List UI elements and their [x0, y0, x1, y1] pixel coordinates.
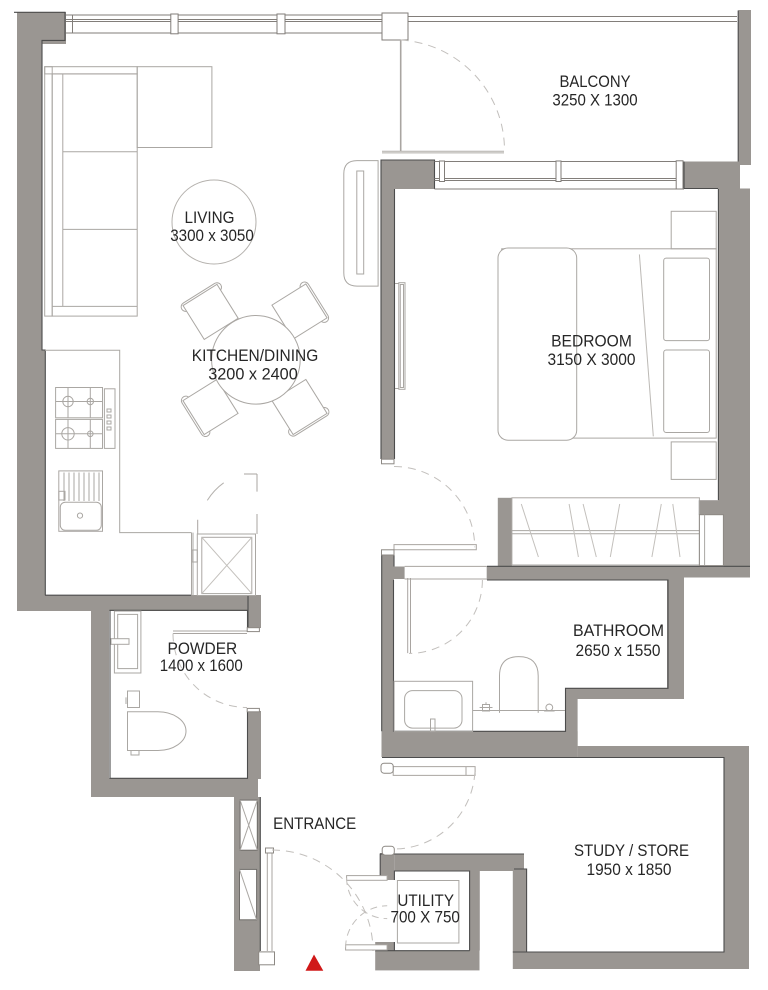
svg-text:BALCONY: BALCONY — [559, 72, 630, 91]
svg-text:LIVING: LIVING — [185, 208, 235, 227]
svg-text:ENTRANCE: ENTRANCE — [273, 814, 356, 833]
svg-text:3200 x 2400: 3200 x 2400 — [208, 365, 298, 384]
svg-text:700 X 750: 700 X 750 — [391, 908, 460, 927]
svg-text:STUDY / STORE: STUDY / STORE — [574, 841, 689, 860]
svg-text:1950 x 1850: 1950 x 1850 — [587, 860, 672, 879]
svg-text:3150 X 3000: 3150 X 3000 — [548, 350, 636, 369]
svg-text:BATHROOM: BATHROOM — [573, 621, 664, 640]
svg-text:3300 x 3050: 3300 x 3050 — [170, 226, 254, 245]
svg-text:KITCHEN/DINING: KITCHEN/DINING — [192, 346, 319, 365]
svg-text:2650 x 1550: 2650 x 1550 — [576, 641, 661, 660]
svg-text:BEDROOM: BEDROOM — [551, 331, 632, 350]
svg-text:1400 x 1600: 1400 x 1600 — [160, 656, 243, 675]
svg-text:3250 X 1300: 3250 X 1300 — [552, 90, 637, 109]
